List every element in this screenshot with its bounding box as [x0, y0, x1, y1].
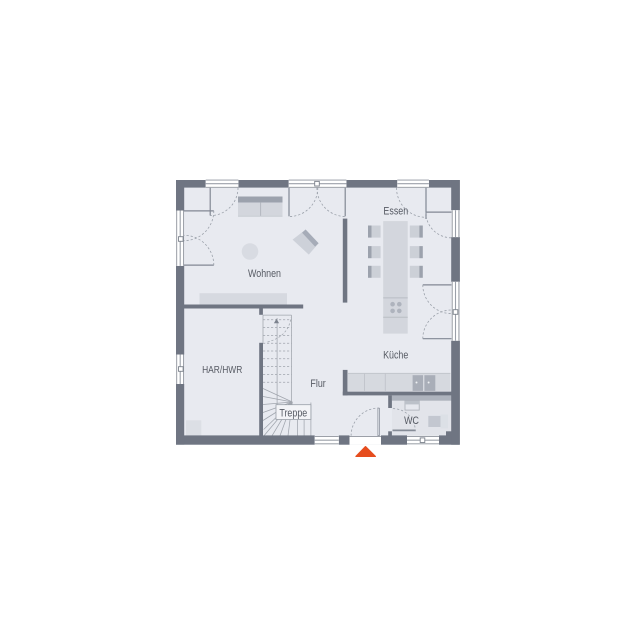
svg-text:Wohnen: Wohnen: [248, 268, 281, 280]
svg-text:HAR/HWR: HAR/HWR: [202, 364, 243, 375]
svg-text:Flur: Flur: [310, 378, 326, 390]
svg-text:Küche: Küche: [383, 350, 409, 362]
svg-text:Essen: Essen: [383, 206, 408, 218]
svg-text:WC: WC: [404, 415, 419, 427]
svg-text:Treppe: Treppe: [279, 408, 307, 420]
